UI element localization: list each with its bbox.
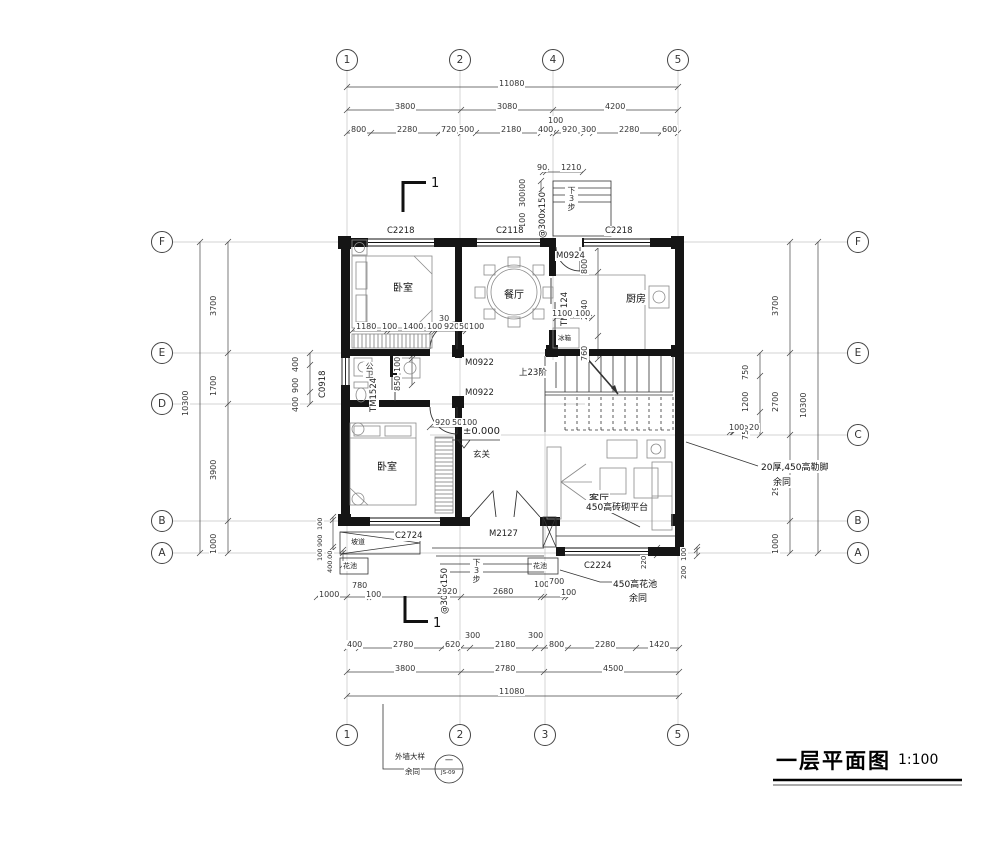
dim-label: 90 (536, 163, 548, 172)
dim-label: 720 (440, 125, 457, 134)
ramp-label: 坡道 (350, 537, 366, 547)
dim-label: 900 (291, 377, 300, 394)
dim-label: 400 (326, 560, 334, 574)
level-label: ±0.000 (462, 426, 501, 437)
room-label-dining: 餐厅 (503, 286, 525, 301)
dim-label: 3800 (394, 664, 416, 673)
dim-label: 10300 (799, 392, 808, 419)
detail-text-2: 余同 (404, 766, 421, 777)
dim-label: 2680 (492, 587, 514, 596)
room-label-kitchen: 厨房 (625, 290, 647, 305)
dim-label: 30 (438, 314, 450, 323)
staircase (545, 356, 673, 432)
dim-label: 100 (381, 322, 398, 331)
dim-label: 2280 (618, 125, 640, 134)
grid-bubble-bottom-3: 3 (534, 724, 556, 746)
dim-label: 500 (458, 125, 475, 134)
detail-text: 外墙大样 (394, 751, 426, 762)
grid-bubble-top-4: 4 (542, 49, 564, 71)
window-label-c2218a: C2218 (386, 226, 416, 236)
dim-label: 300 (518, 191, 527, 208)
dim-label: 2180 (494, 640, 516, 649)
dim-label: 100 (574, 309, 591, 318)
dim-label: 100 (393, 356, 402, 373)
sheet-scale: 1:100 (898, 752, 938, 768)
flower-big-note: 450高花池 (612, 577, 658, 590)
dim-label: 850 (393, 375, 402, 392)
dim-label: 3700 (209, 295, 218, 317)
dim-label: 2780 (494, 664, 516, 673)
grid-bubble-bottom-1: 1 (336, 724, 358, 746)
dim-label: 760 (580, 345, 589, 362)
rear-landing (553, 181, 611, 236)
grid-bubble-left-E: E (151, 342, 173, 364)
grid-bubble-top-1: 1 (336, 49, 358, 71)
dim-label: 800 (580, 258, 589, 275)
grid-bubble-left-D: D (151, 393, 173, 415)
grid-bubble-bottom-5: 5 (667, 724, 689, 746)
dim-label: 1100 (551, 309, 573, 318)
dim-label: 1180 (355, 322, 377, 331)
living-furniture (547, 440, 672, 530)
dim-label: 2280 (396, 125, 418, 134)
dim-label: 300 (464, 631, 481, 640)
dim-label: 220 (640, 555, 648, 570)
dim-label: 750 (741, 364, 750, 381)
platform (543, 512, 675, 547)
dim-label: 1420 (648, 640, 670, 649)
dim-label: 900 (316, 534, 324, 548)
grid-bubble-top-5: 5 (667, 49, 689, 71)
grid-bubble-left-B: B (151, 510, 173, 532)
flower-big-note-2: 余同 (628, 591, 648, 604)
fridge-label: 冰箱 (557, 332, 572, 342)
dim-label: 100 (680, 547, 688, 562)
grid-bubble-right-B: B (847, 510, 869, 532)
dim-label: 300 (580, 125, 597, 134)
dim-right-outer (815, 239, 821, 556)
dim-label: 100 (468, 322, 485, 331)
dim-label: 600 (661, 125, 678, 134)
detail-circle-no: JS-09 (440, 770, 456, 776)
dim-left-sub (307, 350, 313, 407)
plinth-leader (686, 442, 758, 466)
dim-label: 11080 (498, 687, 525, 696)
stair-label: 上23阶 (518, 366, 548, 378)
flower-bed-label-right: 花池 (532, 561, 548, 571)
dim-label: 3900 (209, 459, 218, 481)
dim-label: 2920 (436, 587, 458, 596)
dim-label: 11080 (498, 79, 525, 88)
section-number-bottom: 1 (432, 616, 442, 631)
dim-label: 920 (434, 418, 451, 427)
window-label-c2118: C2118 (495, 226, 525, 236)
room-label-bedroom-bottom: 卧室 (376, 458, 398, 473)
steps-direction: 下3步 (565, 186, 578, 211)
steps-direction-bottom: 下3步 (470, 558, 483, 583)
window-label-c2218b: C2218 (604, 226, 634, 236)
dim-label: 800 (350, 125, 367, 134)
dim-label: 400 (291, 356, 300, 373)
grid-bubble-right-E: E (847, 342, 869, 364)
window-label-c0918: C0918 (318, 370, 328, 398)
dim-label: 2180 (500, 125, 522, 134)
dim-label: 200 (680, 565, 688, 580)
dim-kitchen-v (595, 245, 601, 362)
platform-note: 450高砖砌平台 (585, 500, 649, 513)
dim-right-bottom (694, 544, 700, 559)
dim-label: 920 (561, 125, 578, 134)
floor-plan-sheet: 1 2 4 5 1 2 3 5 F E D B A F E C B A 1108… (0, 0, 1008, 858)
door-m2127-entry (470, 491, 540, 517)
door-label-tm1524: TM1524 (369, 378, 379, 412)
dim-label: 400 (346, 640, 363, 649)
dim-label: 4500 (602, 664, 624, 673)
dim-left-outer (197, 239, 203, 556)
section-number-top: 1 (430, 176, 440, 191)
dim-label: 100 (365, 590, 382, 599)
dim-label: 3800 (394, 102, 416, 111)
dim-left-small1 (330, 514, 336, 553)
room-label-bath: 公卫 (363, 362, 376, 378)
dim-label: 400 (291, 396, 300, 413)
detail-circle-top: 一 (444, 755, 454, 766)
grid-bubble-left-A: A (151, 542, 173, 564)
dim-label: 1210 (560, 163, 582, 172)
dim-left-major (225, 239, 231, 556)
dim-label: 1000 (771, 533, 780, 555)
window-label-c2224: C2224 (583, 561, 613, 571)
dim-label: 1000 (209, 533, 218, 555)
dim-label: 100 (316, 517, 324, 531)
steps-note: @300x150 (538, 192, 548, 238)
dim-label: 100 (461, 418, 478, 427)
door-label-m2127: M2127 (488, 529, 519, 539)
dim-label: 3080 (496, 102, 518, 111)
grid-bubble-left-F: F (151, 231, 173, 253)
dim-label: 3700 (771, 295, 780, 317)
dim-label: 700 (548, 577, 565, 586)
wardrobe-top (352, 334, 432, 348)
dim-label: 400 (537, 125, 554, 134)
dim-label: 100 (547, 116, 564, 125)
dim-label: 100 (560, 588, 577, 597)
grid-bubble-top-2: 2 (449, 49, 471, 71)
dim-label: 1200 (741, 391, 750, 413)
section-mark-bottom (405, 596, 428, 623)
dim-label: 1000 (318, 590, 340, 599)
plinth-note-2: 余同 (772, 475, 792, 488)
dim-label: 620 (444, 640, 461, 649)
title-underline (773, 780, 962, 785)
dim-label: 2780 (392, 640, 414, 649)
dim-label: 20 (748, 423, 760, 432)
door-label-m0922b: M0922 (464, 388, 495, 398)
grid-bubble-bottom-2: 2 (449, 724, 471, 746)
dim-label: 100 (728, 423, 745, 432)
dim-label: 4200 (604, 102, 626, 111)
dim-label: 300 (527, 631, 544, 640)
dim-right-major (787, 239, 793, 556)
dim-label: 10300 (181, 390, 190, 417)
room-label-bedroom-top: 卧室 (392, 279, 414, 294)
grid-bubble-right-C: C (847, 424, 869, 446)
flower-bed-label-left: 花池 (342, 561, 358, 571)
dim-label: 100 (316, 548, 324, 562)
plinth-note: 20厚,450高勒脚 (760, 460, 830, 473)
dim-label: 1700 (209, 375, 218, 397)
window-label-c2724: C2724 (394, 531, 424, 541)
grid-bubble-right-A: A (847, 542, 869, 564)
room-label-foyer: 玄关 (472, 448, 491, 460)
sheet-title: 一层平面图 (776, 745, 891, 775)
dim-label: 2700 (771, 391, 780, 413)
dim-label: 100 (426, 322, 443, 331)
section-mark-top (403, 181, 426, 212)
dim-label: 780 (351, 581, 368, 590)
door-label-m0922a: M0922 (464, 358, 495, 368)
flower-leader (560, 570, 612, 582)
grid-bubble-right-F: F (847, 231, 869, 253)
dim-label: 800 (548, 640, 565, 649)
dim-label: 2280 (594, 640, 616, 649)
dim-label: 1400 (402, 322, 424, 331)
wardrobe-bottom (435, 437, 453, 513)
